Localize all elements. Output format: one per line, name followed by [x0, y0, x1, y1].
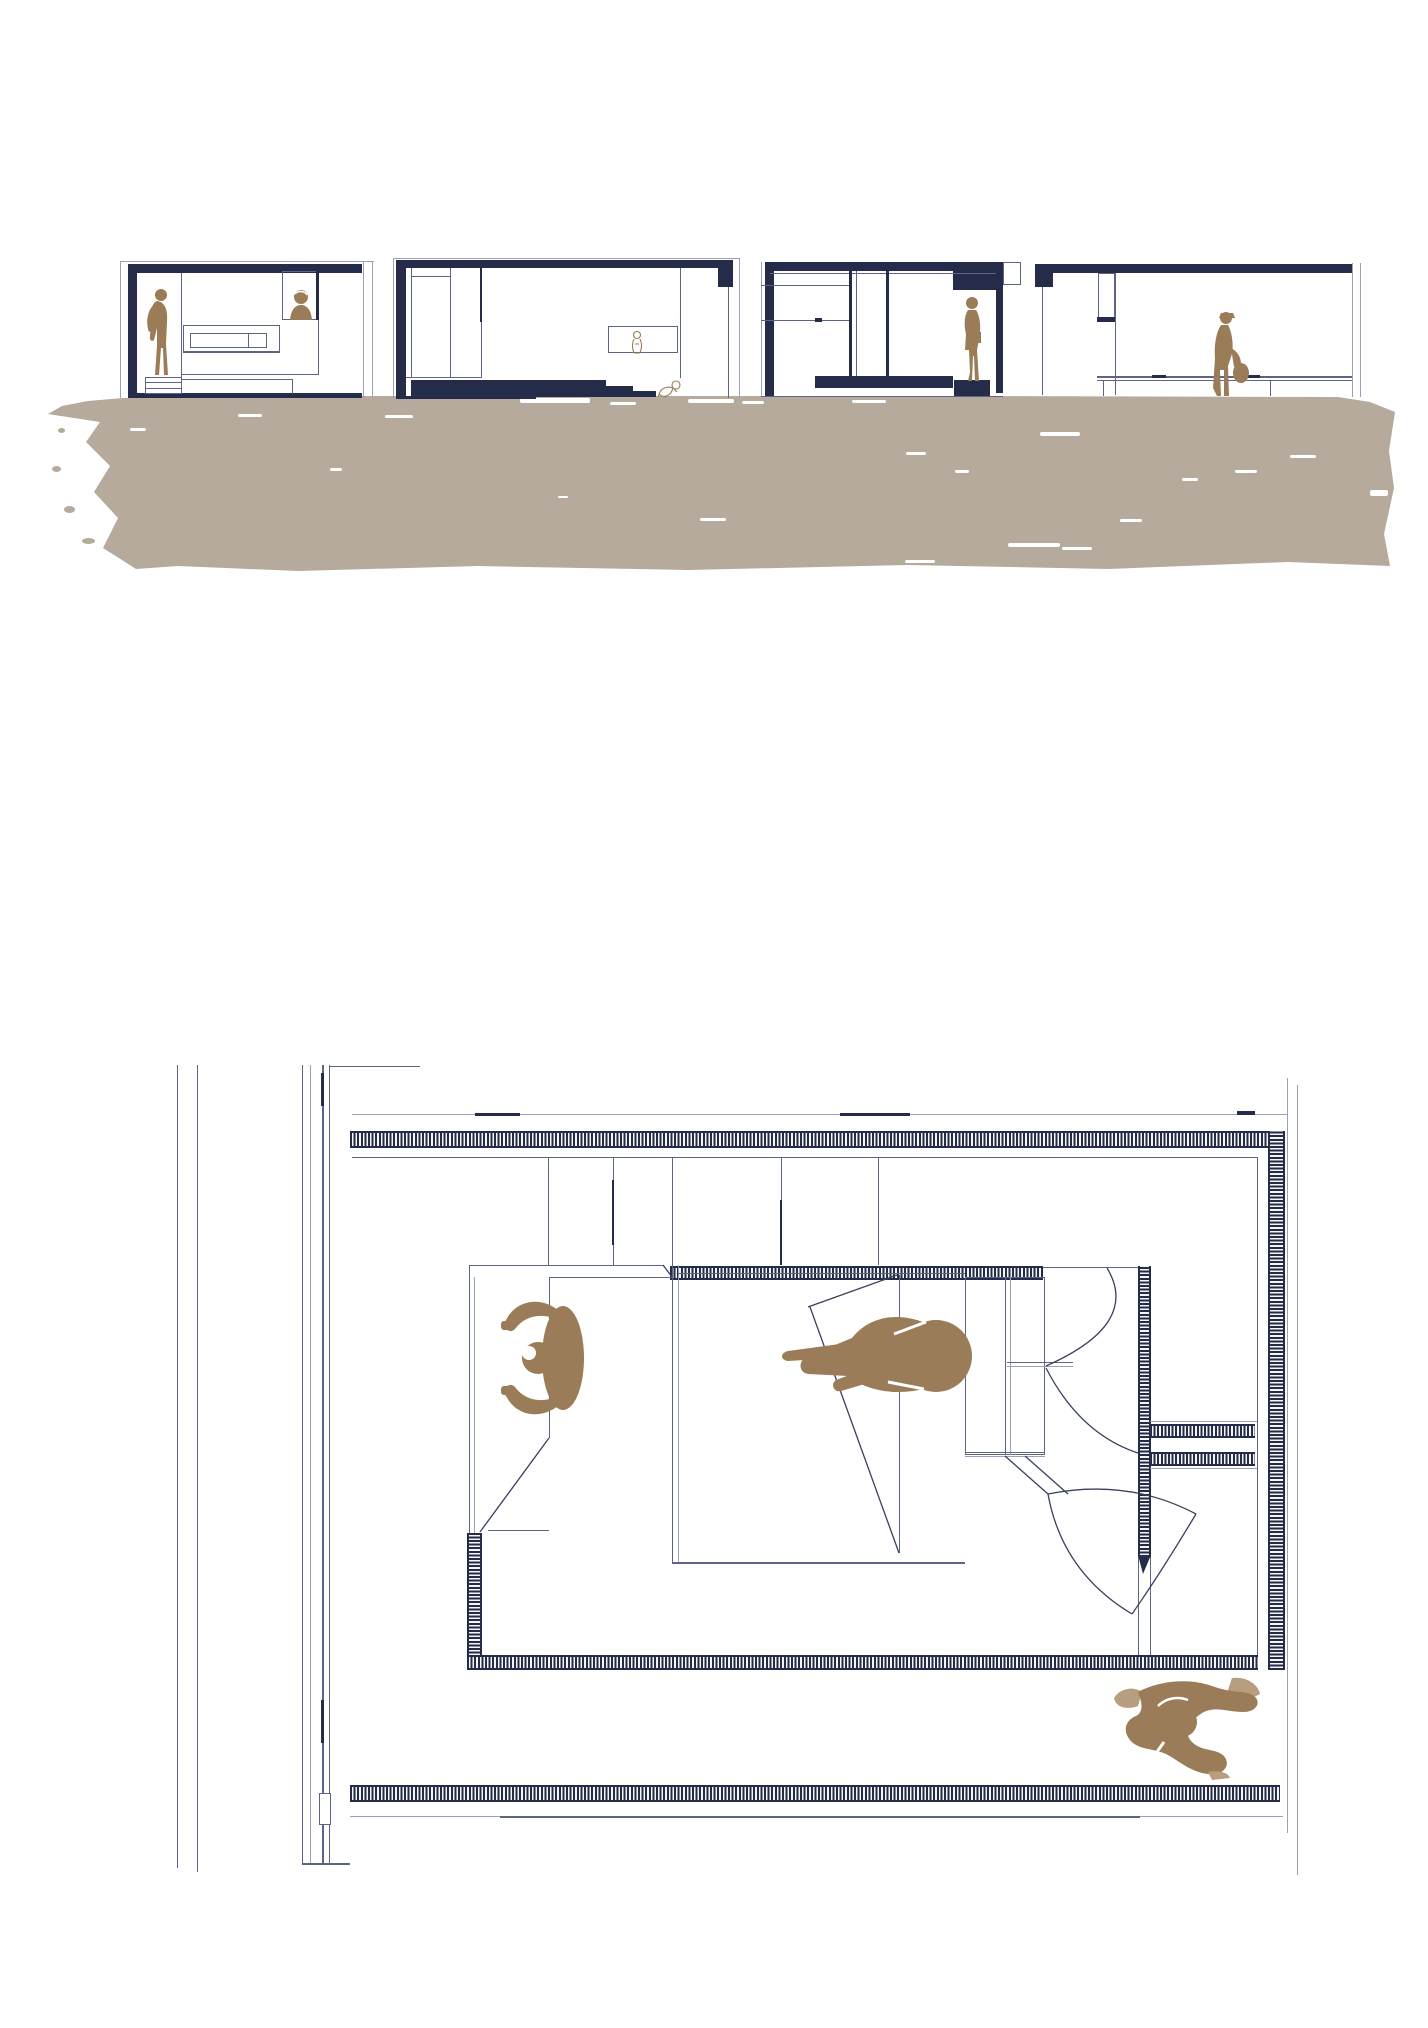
cabinet-shelf — [183, 351, 280, 353]
right-wall-hatched — [1268, 1131, 1285, 1670]
platform-step — [606, 386, 633, 397]
cabinet-divider — [248, 333, 249, 348]
paint-gap — [1062, 547, 1092, 550]
outline — [120, 261, 374, 262]
eave-frame — [1003, 262, 1021, 285]
door-jamb — [319, 1793, 331, 1825]
paint-gap — [1008, 543, 1060, 547]
window-woman-figure — [286, 289, 314, 320]
wardrobe-divider — [1005, 1277, 1006, 1455]
glass-line — [1297, 1085, 1298, 1875]
bench-line — [181, 374, 318, 375]
bifold-door-arc — [1046, 1368, 1138, 1453]
ground-blob — [52, 466, 61, 472]
stub-outline — [1150, 1421, 1257, 1422]
partition-line — [181, 273, 182, 393]
mullion-line — [302, 1065, 303, 1863]
room-left-wall-hatched — [467, 1533, 482, 1668]
paint-gap — [742, 401, 764, 404]
bifold-door-arc — [1046, 1268, 1116, 1366]
bed-top-edge — [678, 1273, 965, 1274]
crawling-infant-sketch — [654, 379, 682, 398]
ground-blob — [64, 506, 75, 513]
wardrobe-shelf — [1007, 1362, 1073, 1363]
door-line — [728, 287, 729, 398]
bed-head-line — [550, 1277, 672, 1278]
bed-bottom-edge — [672, 1562, 965, 1564]
window-jamb — [316, 271, 319, 320]
bench-leg — [1103, 380, 1104, 396]
partition-line — [548, 1157, 549, 1265]
paint-gap — [1040, 432, 1080, 436]
platform-step — [633, 391, 656, 397]
room-right-line — [1138, 1557, 1139, 1655]
outline — [1360, 263, 1361, 397]
niche-figure-sketch — [626, 330, 648, 354]
guide-wall-line — [177, 1065, 178, 1868]
room-left-line — [469, 1265, 470, 1533]
overhang-dash — [1237, 1111, 1255, 1115]
wall-tick — [330, 1066, 420, 1067]
roof-slab — [128, 264, 362, 273]
ceiling-line — [770, 273, 996, 274]
paint-gap — [700, 518, 726, 521]
window-frame — [1098, 273, 1115, 322]
mullion-dark-seg — [321, 1073, 324, 1106]
wall-stub-hatched — [1150, 1424, 1255, 1438]
roof-slab — [396, 260, 718, 268]
cabinet-inner — [190, 333, 267, 348]
bed-left-inner — [678, 1265, 679, 1563]
mullion-line — [310, 1065, 311, 1863]
wardrobe-line — [411, 268, 412, 378]
sliding-door-mullion — [886, 271, 889, 377]
floor-line — [406, 377, 481, 378]
stub-outline — [1150, 1468, 1257, 1469]
door-petal-arc — [1048, 1489, 1196, 1514]
door-petal-arc — [1048, 1494, 1132, 1614]
right-wall — [996, 262, 1003, 393]
terrace-line — [350, 1816, 500, 1817]
bed-platform — [411, 380, 606, 397]
bench-leg — [1270, 380, 1271, 396]
ground-blob — [82, 538, 95, 544]
partition-dark — [480, 268, 482, 322]
frame-line — [761, 285, 851, 286]
room-right-wall-hatched — [1138, 1266, 1151, 1557]
ground-line — [761, 396, 1003, 397]
partition-line — [878, 1157, 879, 1265]
daybed-edge — [549, 1277, 550, 1438]
outline — [393, 258, 394, 398]
glass-line — [1287, 1078, 1288, 1833]
drawer-line — [145, 388, 182, 389]
room-top-line — [470, 1265, 663, 1266]
paint-gap — [385, 415, 413, 418]
terrace-line-dark — [500, 1816, 1140, 1818]
room-bottom-wall-hatched — [467, 1655, 1258, 1670]
top-wall-hatched — [350, 1131, 1275, 1148]
glass-line — [856, 271, 857, 377]
paint-gap — [1370, 490, 1388, 496]
sliding-door-mullion — [849, 271, 852, 377]
wall-inner-face — [352, 1157, 1257, 1158]
paint-gap — [955, 470, 969, 473]
left-wall — [128, 264, 137, 397]
mullion-dark-seg — [321, 1700, 324, 1743]
bench-dash — [1152, 375, 1166, 378]
room-right-line — [1150, 1557, 1151, 1655]
paint-gap — [238, 414, 262, 417]
blanket-fold-line — [488, 1530, 549, 1531]
outline — [1352, 263, 1353, 397]
standing-woman-figure — [959, 296, 986, 383]
wardrobe-top — [411, 276, 450, 277]
floor-slab — [396, 396, 536, 399]
drawer-unit — [145, 377, 182, 394]
overhang-dash — [475, 1113, 520, 1116]
floor-slab — [815, 376, 953, 388]
bottom-wall-hatched — [350, 1785, 1280, 1802]
standing-man-figure — [144, 288, 178, 378]
guide-wall-line — [197, 1065, 198, 1872]
roof-drop — [1035, 264, 1053, 287]
paint-gap — [852, 400, 886, 403]
outline — [120, 261, 121, 398]
window-sill — [1097, 317, 1115, 322]
plan-curves-and-figures — [0, 0, 1428, 2028]
door-leaf-line — [1005, 1456, 1048, 1494]
figure-person-walking — [1114, 1678, 1260, 1780]
room-top-line-right — [1043, 1267, 1140, 1268]
bed-left-edge — [672, 1157, 673, 1563]
architectural-sheet — [0, 0, 1428, 2028]
door-leaf-line — [1025, 1456, 1068, 1494]
partition-line — [680, 268, 681, 378]
shelf-tick — [815, 318, 822, 322]
paint-gap — [905, 560, 935, 563]
paint-gap — [906, 452, 926, 455]
figure-person-on-bed — [782, 1317, 972, 1392]
roof-drop — [718, 260, 733, 287]
room-left-line — [474, 1277, 475, 1533]
left-line — [1042, 287, 1043, 395]
paint-gap — [130, 428, 146, 431]
paint-gap — [1235, 470, 1257, 473]
ground-band — [48, 396, 1395, 575]
wardrobe-bottom — [965, 1452, 1045, 1453]
wardrobe-bottom — [965, 1456, 1045, 1457]
throw-diagonal — [810, 1307, 899, 1553]
wardrobe-shelf — [1007, 1366, 1073, 1367]
overhang-dash — [840, 1113, 910, 1116]
outline — [363, 261, 364, 398]
outline — [372, 261, 373, 398]
plinth-end — [292, 379, 293, 394]
woman-with-bag-figure — [1204, 310, 1250, 398]
wardrobe-line — [450, 268, 451, 378]
left-wall — [396, 260, 406, 398]
shelf-line — [761, 320, 849, 321]
terrace-line — [1140, 1816, 1283, 1817]
mullion-line — [322, 1065, 324, 1863]
left-wall — [765, 262, 774, 397]
paint-gap — [610, 402, 636, 405]
window-post — [318, 320, 319, 375]
drawer-line — [145, 382, 182, 383]
paint-gap — [1182, 478, 1198, 481]
wall-inner-face — [1257, 1157, 1258, 1655]
paint-gap — [1120, 519, 1142, 522]
mullion-line — [329, 1065, 330, 1863]
partition-dark-seg — [612, 1180, 614, 1245]
paint-gap — [1290, 455, 1316, 458]
wall-stub-hatched — [1150, 1452, 1255, 1466]
paint-gap — [558, 496, 568, 498]
outline — [393, 258, 740, 259]
paint-gap — [688, 399, 734, 403]
figure-person-stretching — [501, 1302, 584, 1415]
plinth-line — [182, 379, 292, 380]
blanket-diagonal — [480, 1438, 549, 1532]
partition-dark-seg — [780, 1200, 782, 1265]
outline — [761, 262, 762, 397]
ground-blob — [58, 428, 65, 433]
throw-fold-line — [899, 1275, 900, 1553]
wall-tick — [302, 1863, 350, 1865]
outline — [739, 258, 740, 398]
roof-slab — [1035, 264, 1352, 273]
paint-gap — [330, 468, 342, 471]
